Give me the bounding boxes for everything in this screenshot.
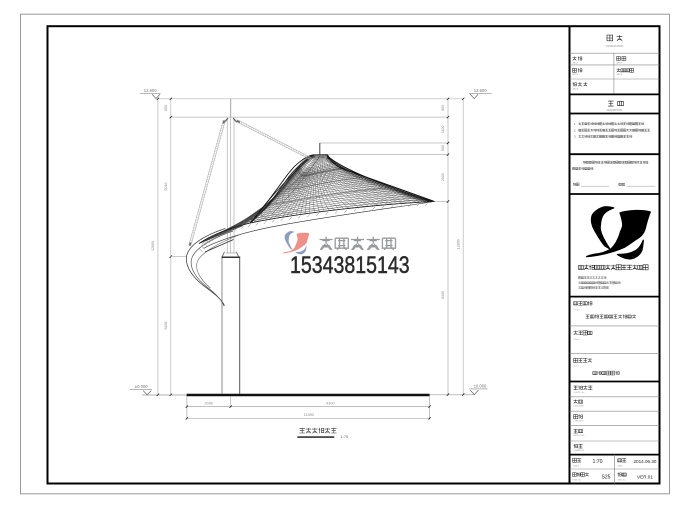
- svg-text:12800: 12800: [151, 241, 155, 251]
- svg-text:VER.01: VER.01: [637, 474, 653, 479]
- svg-text:Client: Client: [574, 338, 580, 341]
- svg-text:CONSULTATION: CONSULTATION: [606, 45, 624, 48]
- svg-text:±0.000: ±0.000: [474, 384, 487, 389]
- svg-text:ARCH: ARCH: [573, 73, 579, 76]
- svg-text:2014.06.30: 2014.06.30: [634, 459, 657, 464]
- svg-text:SCALE: SCALE: [573, 464, 580, 467]
- svg-text:5486: 5486: [164, 322, 168, 330]
- svg-text:APPROVED: APPROVED: [574, 434, 586, 437]
- svg-text:CHECKED: CHECKED: [574, 421, 584, 423]
- svg-text:8400: 8400: [441, 291, 445, 299]
- svg-text:VER. No.: VER. No.: [618, 480, 627, 482]
- svg-text:6016: 6016: [164, 183, 168, 191]
- svg-text:ARCH: ARCH: [573, 88, 579, 91]
- svg-text:ARCH: ARCH: [617, 61, 623, 64]
- svg-text:1:70: 1:70: [341, 434, 350, 439]
- svg-text:1.: 1.: [574, 122, 577, 126]
- svg-text:2090: 2090: [204, 401, 212, 405]
- svg-text:ARCH: ARCH: [573, 61, 579, 64]
- svg-text:12800: 12800: [456, 239, 460, 249]
- svg-text:2.: 2.: [574, 128, 577, 132]
- svg-text:9300: 9300: [326, 401, 334, 405]
- svg-text:1100: 1100: [441, 125, 445, 133]
- svg-text:2000: 2000: [441, 173, 445, 181]
- svg-text:3.: 3.: [574, 135, 577, 139]
- svg-text:DESIGNED: DESIGNED: [574, 406, 585, 408]
- svg-text:11390: 11390: [304, 413, 314, 417]
- svg-text:S25: S25: [602, 474, 611, 480]
- svg-text:Project: Project: [574, 309, 581, 312]
- svg-text:ARCH: ARCH: [617, 73, 623, 76]
- svg-text:15343815143: 15343815143: [290, 252, 410, 279]
- svg-text:500: 500: [441, 145, 445, 151]
- svg-text:DRAWN BY: DRAWN BY: [574, 449, 585, 452]
- svg-text:DESCRIPTION: DESCRIPTION: [607, 110, 623, 112]
- svg-text:DATE: DATE: [618, 464, 624, 467]
- svg-text:DWG. No.: DWG. No.: [573, 480, 583, 482]
- svg-text:±0.000: ±0.000: [135, 384, 148, 389]
- svg-text:12.600: 12.600: [144, 88, 157, 93]
- svg-text:800: 800: [164, 105, 168, 111]
- svg-text:12.600: 12.600: [474, 88, 487, 93]
- svg-text:1:70: 1:70: [592, 459, 602, 465]
- svg-text:T.C.#: T.C.#: [574, 366, 580, 368]
- svg-text:800: 800: [441, 105, 445, 111]
- svg-text:CONTR. No.: CONTR. No.: [574, 392, 586, 394]
